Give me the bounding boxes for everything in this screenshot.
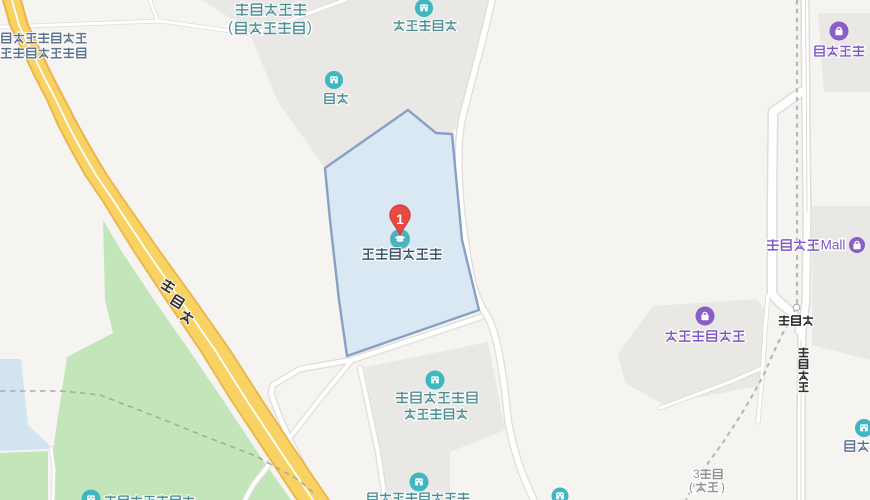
svg-text:Mall: Mall [821,238,846,253]
svg-text:): ) [721,480,725,494]
svg-text:1: 1 [396,212,404,227]
svg-text:(: ( [228,20,233,36]
svg-text:(: ( [689,480,693,494]
svg-text:): ) [307,20,312,36]
